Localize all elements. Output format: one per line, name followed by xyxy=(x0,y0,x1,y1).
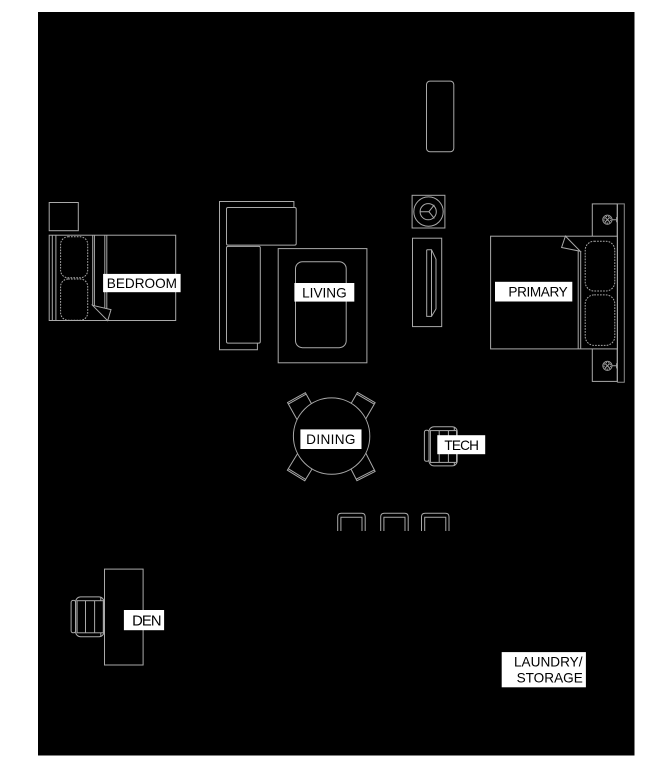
svg-text:DINING: DINING xyxy=(306,432,356,447)
svg-text:DEN: DEN xyxy=(132,614,161,630)
svg-text:PRIMARY: PRIMARY xyxy=(508,284,567,299)
svg-text:STORAGE: STORAGE xyxy=(517,670,583,685)
svg-text:TECH: TECH xyxy=(444,438,478,453)
svg-text:LIVING: LIVING xyxy=(302,285,347,300)
svg-text:LAUNDRY/: LAUNDRY/ xyxy=(514,655,583,670)
svg-text:BEDROOM: BEDROOM xyxy=(107,276,177,291)
